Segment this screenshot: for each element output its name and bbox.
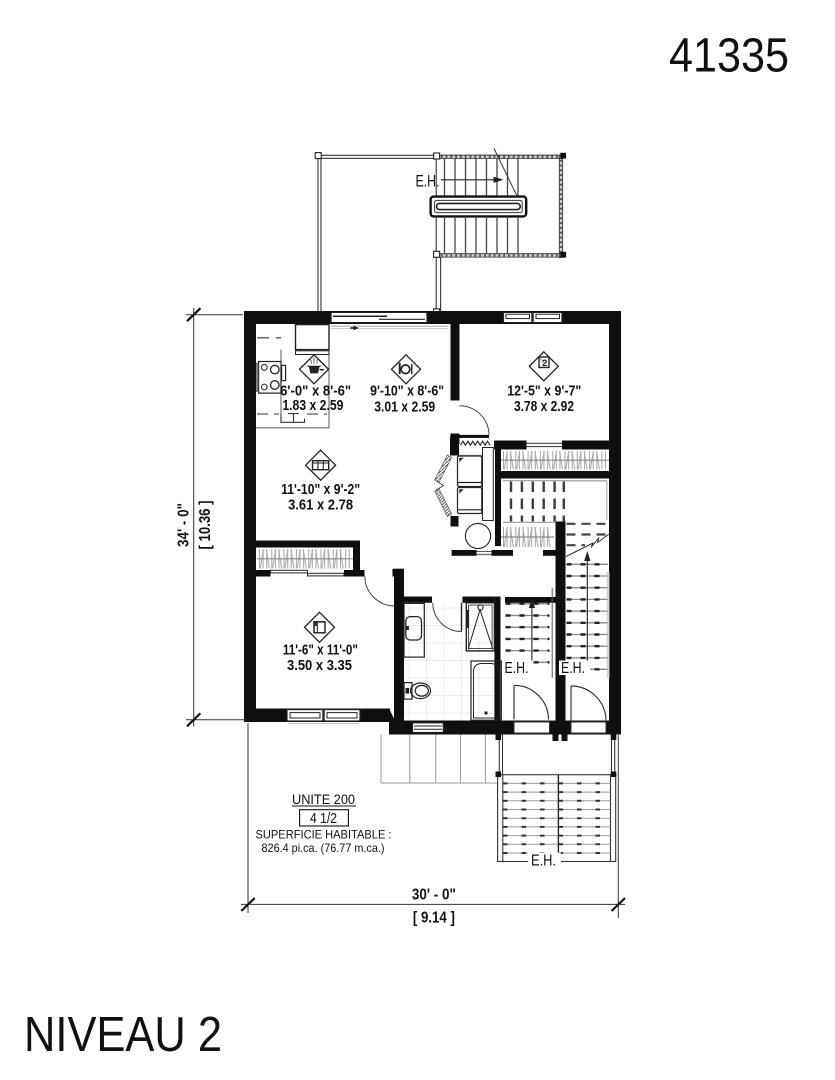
svg-text:6'-0" x 8'-6": 6'-0" x 8'-6" xyxy=(280,383,351,399)
svg-text:E.H.: E.H. xyxy=(561,660,585,677)
svg-text:[ 10.36 ]: [ 10.36 ] xyxy=(197,501,214,550)
svg-text:E.H.: E.H. xyxy=(531,853,556,870)
svg-text:E.H.: E.H. xyxy=(505,660,529,677)
svg-text:30' - 0": 30' - 0" xyxy=(412,887,456,904)
svg-text:3.78 x 2.92: 3.78 x 2.92 xyxy=(514,399,574,415)
svg-text:SUPERFICIE HABITABLE :: SUPERFICIE HABITABLE : xyxy=(256,830,392,842)
svg-text:41335: 41335 xyxy=(669,30,789,83)
svg-text:1.83 x 2.59: 1.83 x 2.59 xyxy=(282,398,343,414)
svg-text:UNITE 200: UNITE 200 xyxy=(292,792,355,807)
svg-text:9'-10" x 8'-6": 9'-10" x 8'-6" xyxy=(370,384,444,400)
svg-text:NIVEAU 2: NIVEAU 2 xyxy=(24,1008,222,1062)
svg-text:2: 2 xyxy=(542,358,547,368)
svg-text:826.4 pi.ca. (76.77 m.ca.): 826.4 pi.ca. (76.77 m.ca.) xyxy=(262,841,385,855)
svg-text:11'-10" x 9'-2": 11'-10" x 9'-2" xyxy=(281,482,360,498)
svg-text:3.01 x 2.59: 3.01 x 2.59 xyxy=(374,399,435,415)
svg-text:3.61 x 2.78: 3.61 x 2.78 xyxy=(288,498,353,514)
svg-text:4 1/2: 4 1/2 xyxy=(310,811,337,827)
svg-text:3.50 x 3.35: 3.50 x 3.35 xyxy=(287,658,352,674)
svg-text:11'-6" x 11'-0": 11'-6" x 11'-0" xyxy=(283,643,358,659)
svg-text:34' - 0": 34' - 0" xyxy=(176,503,193,547)
svg-text:E.H.: E.H. xyxy=(416,172,440,191)
svg-text:[ 9.14 ]: [ 9.14 ] xyxy=(413,910,455,927)
svg-text:12'-5" x 9'-7": 12'-5" x 9'-7" xyxy=(507,384,581,400)
